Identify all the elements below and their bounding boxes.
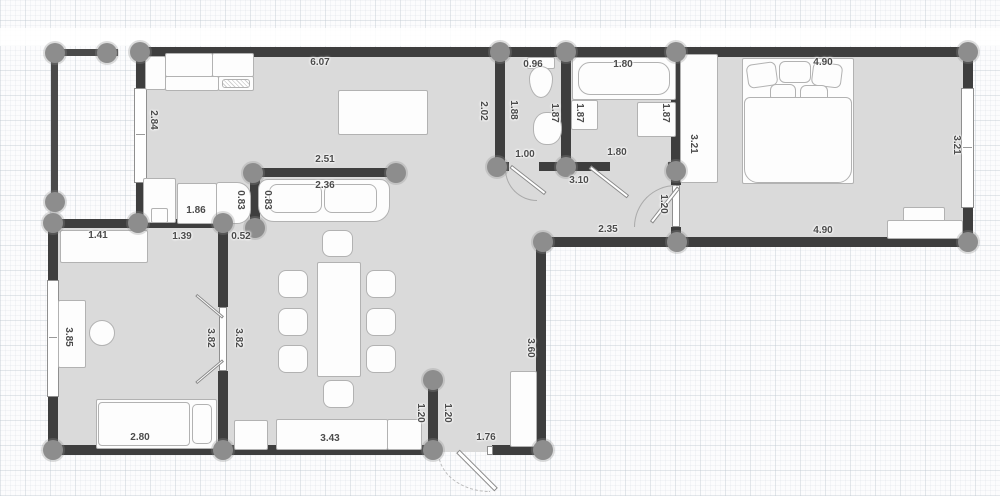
living-table[interactable] (338, 90, 428, 135)
post[interactable] (556, 157, 576, 177)
dim-bath-bottom: 1.80 (607, 148, 626, 158)
dim-bedroom-door: 1.20 (658, 194, 668, 213)
post[interactable] (666, 42, 686, 62)
post[interactable] (423, 440, 443, 460)
kitchen-counter[interactable] (165, 76, 219, 91)
post[interactable] (43, 440, 63, 460)
window-rail (963, 147, 972, 148)
dining-table[interactable] (317, 262, 361, 377)
dim-dining-right: 3.60 (525, 338, 535, 357)
kitchen-corner-cabinet[interactable] (145, 56, 166, 90)
dim-bath-left: 1.87 (574, 103, 584, 122)
dim-counter: 1.86 (186, 206, 205, 216)
dining-chair[interactable] (278, 308, 308, 336)
dining-chair[interactable] (322, 230, 353, 257)
dim-hall-bottom: 2.35 (598, 225, 617, 235)
post[interactable] (666, 161, 686, 181)
post[interactable] (958, 232, 978, 252)
sofa-cushion (269, 184, 322, 213)
dim-kids-bed: 2.80 (130, 433, 149, 443)
duvet (744, 97, 852, 183)
dim-partition: 2.51 (315, 155, 334, 165)
dim-bedroom-top: 4.90 (813, 58, 832, 68)
wall-partition[interactable] (249, 168, 399, 177)
post[interactable] (556, 42, 576, 62)
dim-stub-right: 1.20 (442, 403, 452, 422)
dining-chair[interactable] (366, 308, 396, 336)
post[interactable] (43, 213, 63, 233)
dim-bath-right: 1.87 (660, 103, 670, 122)
dim-hall-top: 3.10 (569, 176, 588, 186)
wall-dining-right[interactable] (536, 243, 546, 455)
post[interactable] (667, 232, 687, 252)
balcony-wall-left[interactable] (51, 49, 58, 205)
dim-bedroom-right: 3.21 (951, 135, 961, 154)
sideboard[interactable] (387, 419, 422, 450)
dim-kitchen-left: 2.84 (148, 110, 158, 129)
post[interactable] (130, 42, 150, 62)
dim-kids-top: 1.39 (172, 232, 191, 242)
dining-chair[interactable] (366, 270, 396, 298)
post[interactable] (487, 157, 507, 177)
kitchen-sink (222, 79, 250, 88)
dim-sofa: 2.36 (315, 181, 334, 191)
sideboard[interactable] (234, 420, 268, 450)
dim-kids-left: 3.85 (63, 327, 73, 346)
window-rail (136, 134, 145, 135)
post[interactable] (533, 440, 553, 460)
dining-chair[interactable] (278, 270, 308, 298)
wall-wc-bath-divider[interactable] (561, 47, 571, 168)
dim-sideboard: 3.43 (320, 434, 339, 444)
kitchen-counter-186[interactable] (177, 183, 217, 224)
dim-living-right: 2.02 (478, 101, 488, 120)
dresser[interactable] (887, 220, 963, 239)
post[interactable] (386, 163, 406, 183)
dim-wc-bottom: 1.00 (515, 150, 534, 160)
entry-door-arc (438, 452, 490, 492)
desk-chair[interactable] (89, 320, 115, 346)
dim-wc-left: 1.88 (508, 100, 518, 119)
post[interactable] (958, 42, 978, 62)
post[interactable] (243, 163, 263, 183)
pillow (779, 61, 811, 83)
dim-entry-door: 1.76 (476, 433, 495, 443)
dining-chair[interactable] (323, 380, 354, 408)
dim-kids-door-left: 3.82 (205, 328, 215, 347)
post[interactable] (490, 42, 510, 62)
dining-chair[interactable] (366, 345, 396, 373)
dim-kitchen-top: 6.07 (310, 58, 329, 68)
dim-wardrobe: 3.21 (688, 134, 698, 153)
dim-wc-right: 1.87 (549, 103, 559, 122)
window-rail (49, 337, 57, 338)
wardrobe[interactable] (680, 54, 718, 183)
floor-plan-canvas: 6.07 2.84 2.51 2.36 1.86 0.83 0.83 2.02 … (0, 0, 1000, 496)
post[interactable] (213, 213, 233, 233)
post[interactable] (533, 232, 553, 252)
fridge-detail (151, 208, 168, 223)
shoe-cabinet[interactable] (510, 371, 537, 447)
kitchen-cabinet[interactable] (212, 53, 254, 77)
wall-living-right[interactable] (495, 47, 505, 168)
dim-kids-cabinet: 1.41 (88, 231, 107, 241)
dim-stub-left: 1.20 (415, 403, 425, 422)
wall-top[interactable] (137, 47, 973, 57)
dining-chair[interactable] (278, 345, 308, 373)
post[interactable] (213, 440, 233, 460)
post[interactable] (45, 43, 65, 63)
window-living[interactable] (134, 88, 147, 183)
post[interactable] (97, 43, 117, 63)
dim-bath-tub: 1.80 (613, 60, 632, 70)
dim-kids-door-right: 3.82 (233, 328, 243, 347)
dim-wc-top: 0.96 (523, 60, 542, 70)
kitchen-cabinet[interactable] (165, 53, 213, 77)
dim-kids-wall: 0.52 (231, 232, 250, 242)
post[interactable] (423, 370, 443, 390)
kids-pillow (192, 404, 212, 444)
post[interactable] (45, 192, 65, 212)
post[interactable] (128, 213, 148, 233)
dim-counter-depth-b: 0.83 (262, 190, 272, 209)
dim-counter-depth-a: 0.83 (235, 190, 245, 209)
dim-bedroom-bottom: 4.90 (813, 226, 832, 236)
window-bedroom[interactable] (961, 88, 974, 208)
